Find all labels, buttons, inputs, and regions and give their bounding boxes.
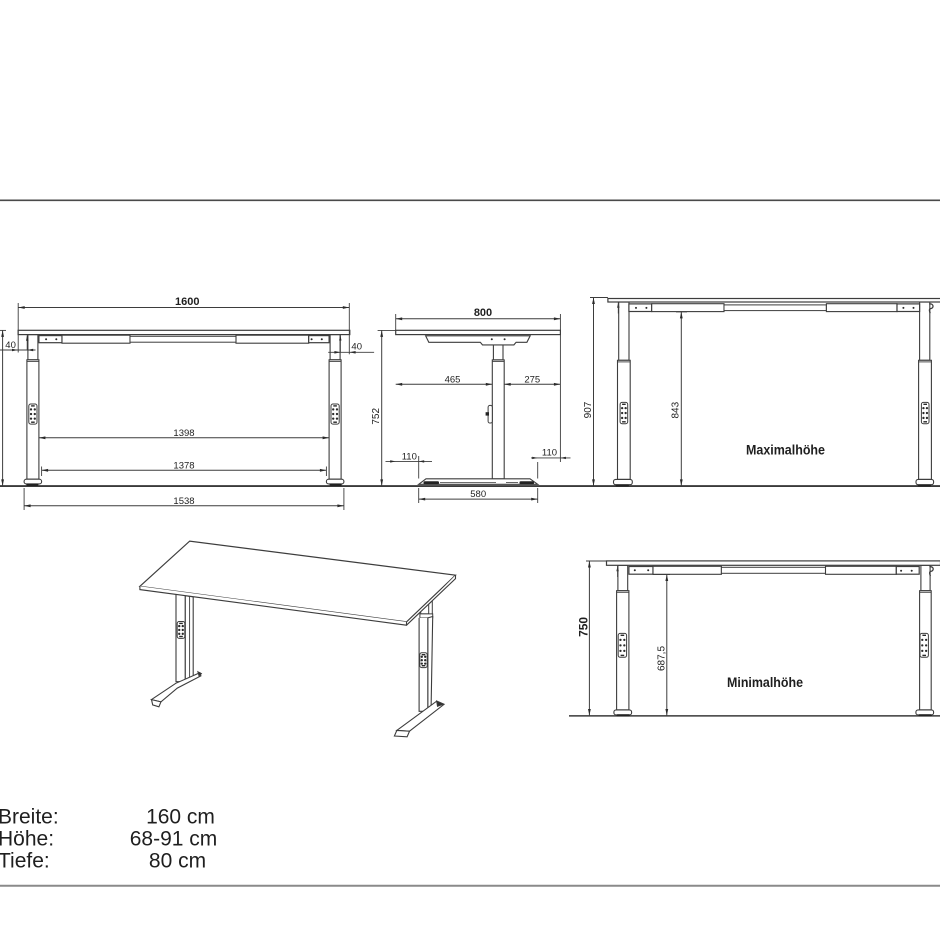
svg-text:1538: 1538 — [173, 496, 194, 507]
svg-text:843: 843 — [671, 401, 682, 418]
svg-text:40: 40 — [351, 342, 362, 353]
svg-text:750: 750 — [576, 617, 590, 637]
svg-text:465: 465 — [445, 374, 461, 385]
svg-text:752: 752 — [371, 408, 382, 425]
svg-text:80 cm: 80 cm — [149, 849, 206, 872]
svg-text:110: 110 — [542, 448, 557, 459]
svg-text:40: 40 — [5, 340, 16, 351]
svg-text:110: 110 — [402, 451, 417, 462]
svg-text:68-91 cm: 68-91 cm — [130, 828, 218, 851]
svg-text:580: 580 — [470, 489, 486, 500]
svg-text:1398: 1398 — [173, 428, 194, 439]
svg-text:275: 275 — [524, 374, 540, 385]
svg-text:160 cm: 160 cm — [146, 805, 215, 828]
svg-text:Minimalhöhe: Minimalhöhe — [727, 674, 803, 690]
svg-text:Tiefe:: Tiefe: — [0, 849, 50, 872]
svg-text:Maximalhöhe: Maximalhöhe — [746, 442, 825, 458]
svg-text:907: 907 — [583, 401, 594, 418]
svg-text:1378: 1378 — [173, 460, 194, 471]
svg-text:800: 800 — [474, 307, 492, 319]
svg-text:Höhe:: Höhe: — [0, 828, 54, 851]
svg-text:687,5: 687,5 — [656, 646, 667, 671]
svg-text:752: 752 — [0, 399, 3, 416]
svg-text:1600: 1600 — [175, 296, 199, 308]
svg-text:Breite:: Breite: — [0, 805, 59, 828]
